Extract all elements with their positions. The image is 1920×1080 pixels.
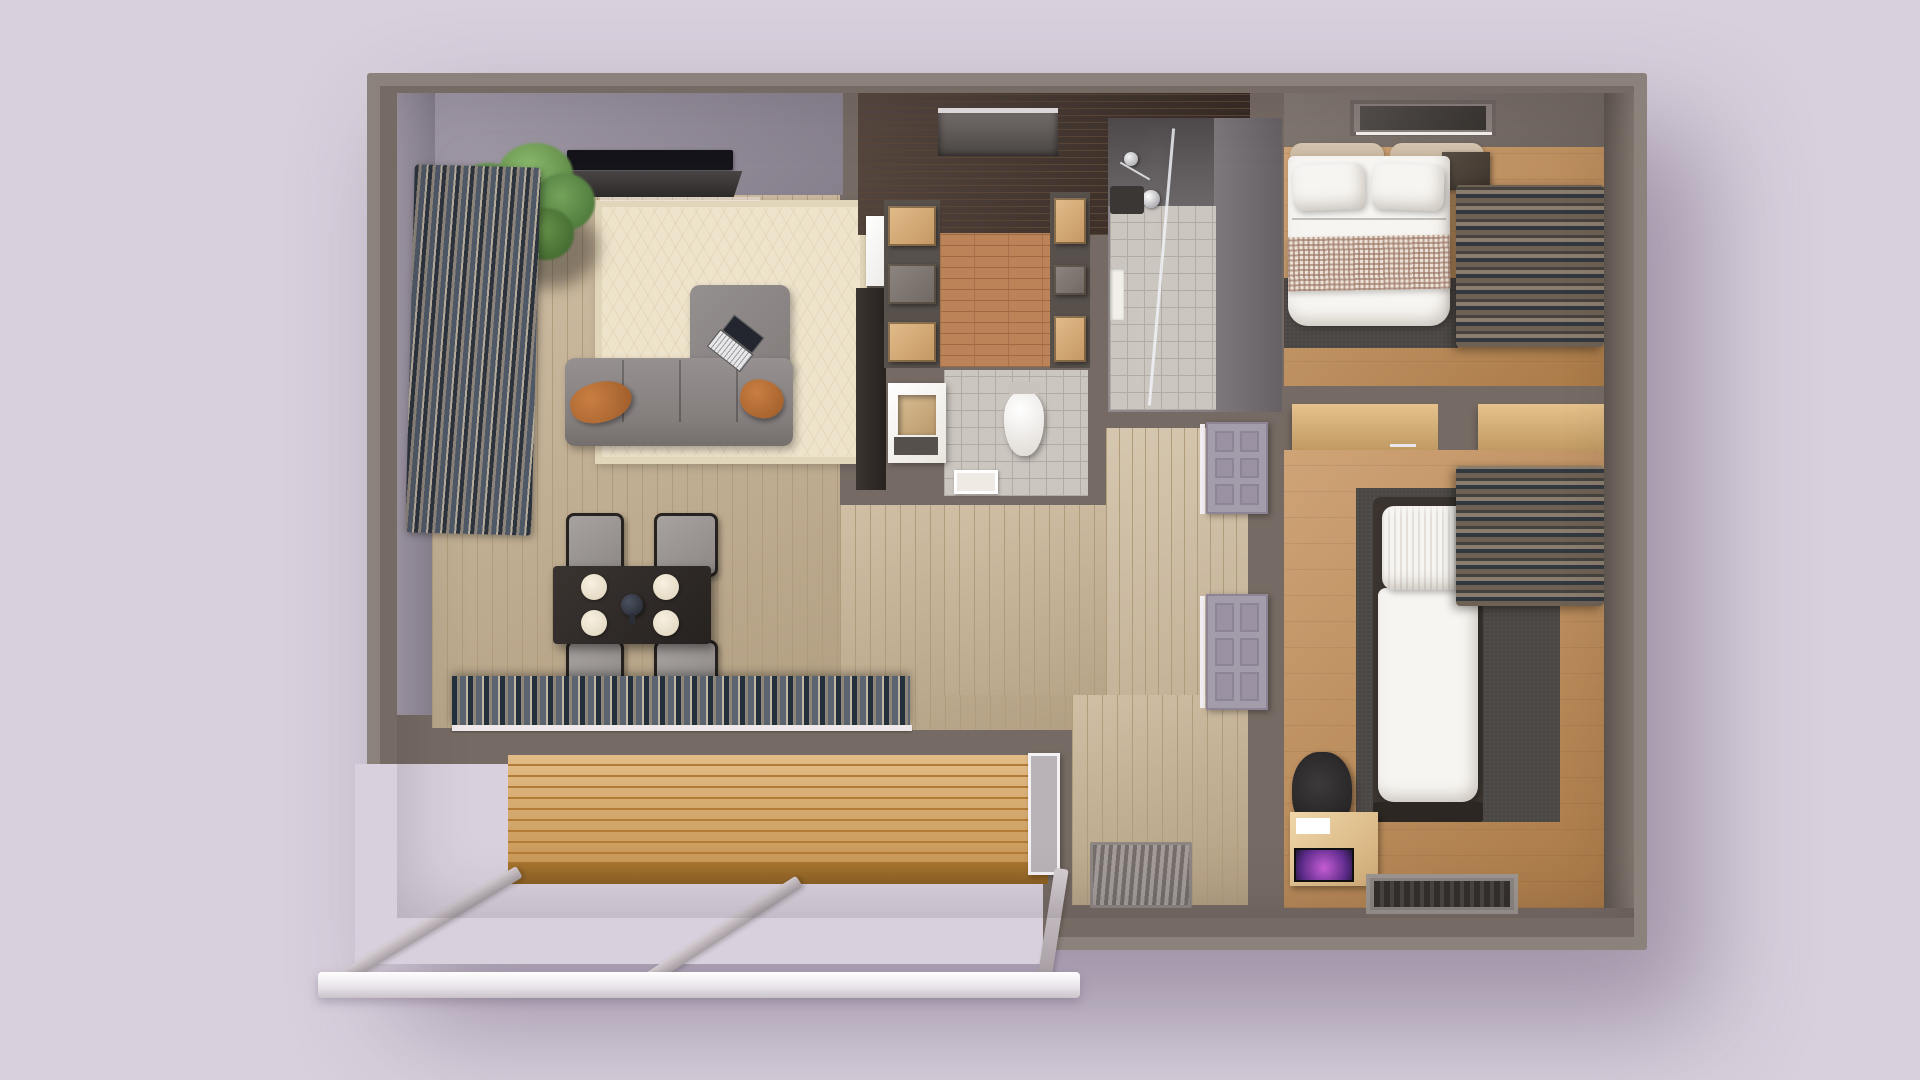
- vanity-basin: [898, 395, 936, 435]
- window-curtains-left: [405, 164, 541, 535]
- door-panel: [1240, 458, 1259, 479]
- right-wall-inner-face: [1604, 93, 1634, 908]
- cabinet-box: [1054, 316, 1086, 362]
- cabinet-box: [1054, 265, 1086, 295]
- bed2-footboard: [1373, 802, 1483, 822]
- kitchen-floor: [940, 233, 1050, 367]
- bedroom2-curtains: [1456, 466, 1604, 606]
- deck-edge-shadow: [508, 862, 1048, 884]
- plate: [581, 610, 607, 636]
- shower-right-wall: [1214, 118, 1282, 412]
- vent-inner: [1374, 881, 1510, 907]
- duvet-fold: [1292, 218, 1446, 220]
- divider-wall-stub: [1438, 386, 1478, 450]
- plate: [653, 574, 679, 600]
- door-edge-highlight: [1200, 424, 1205, 514]
- master-curtains: [1456, 185, 1604, 347]
- kitchen-cabinets-left: [884, 200, 940, 368]
- sofa-cushion-seam: [679, 360, 681, 422]
- door-panel: [1215, 638, 1234, 667]
- dining-table: [553, 566, 711, 644]
- toilet-bowl: [1004, 390, 1044, 456]
- toilet: [1004, 382, 1046, 458]
- shower-mat-dark: [1110, 186, 1144, 214]
- sliding-door-curtains: [452, 676, 910, 726]
- toilet-tank: [1008, 382, 1040, 394]
- hall-door-2: [1206, 594, 1268, 710]
- desk-drawer-handle: [1390, 444, 1416, 447]
- door-edge-highlight: [1200, 596, 1205, 708]
- wc-drain-mat: [954, 470, 998, 494]
- cabinet-box: [888, 322, 936, 362]
- door-panel: [1215, 603, 1234, 632]
- entry-grate: [1090, 842, 1192, 908]
- overhead-shelf-recess: [938, 108, 1058, 156]
- door-panel: [1215, 484, 1234, 505]
- bed-pillow: [1292, 163, 1366, 211]
- cabinet-box: [888, 264, 936, 304]
- desk-counter-right: [1478, 404, 1604, 450]
- hall-door-1: [1206, 422, 1268, 514]
- desk-counter-left: [1292, 404, 1438, 450]
- baseboard-highlight: [600, 197, 760, 201]
- teapot: [621, 594, 643, 616]
- deck-boards: [508, 755, 1048, 865]
- teapot-spout: [629, 614, 635, 624]
- vanity-shadow: [894, 437, 938, 455]
- shelf-rim-highlight: [938, 108, 1058, 113]
- recess-rim-light: [1356, 132, 1492, 135]
- sliding-door-sill: [452, 725, 912, 731]
- kitchen-counter: [856, 288, 886, 490]
- bed2-duvet: [1378, 588, 1478, 802]
- shower-head-large: [1142, 190, 1160, 208]
- door-panel: [1215, 431, 1234, 452]
- door-panel: [1215, 672, 1234, 701]
- door-panel: [1215, 458, 1234, 479]
- bed-pillow: [1371, 163, 1445, 211]
- plate: [581, 574, 607, 600]
- checkered-blanket: [1288, 235, 1451, 292]
- door-panel: [1240, 672, 1259, 701]
- ceiling-light-recess: [1350, 100, 1496, 136]
- master-bed: [1288, 156, 1450, 328]
- paper-sheet: [1296, 818, 1330, 834]
- cabinet-box: [888, 206, 936, 246]
- shower-niche: [1110, 268, 1124, 320]
- floor-plan-render: [0, 0, 1920, 1080]
- door-panel: [1240, 484, 1259, 505]
- monitor-screen: [1294, 848, 1354, 882]
- door-panel: [1240, 603, 1259, 632]
- door-panel: [1240, 431, 1259, 452]
- recess-inner: [1360, 106, 1486, 130]
- railing-bar: [318, 972, 1080, 998]
- cabinet-box: [1054, 198, 1086, 244]
- door-panel: [1240, 638, 1259, 667]
- kitchen-cabinets-right: [1050, 192, 1090, 368]
- vanity: [888, 383, 946, 463]
- monitor-desk: [1290, 812, 1378, 886]
- floor-vent: [1366, 874, 1518, 914]
- plate: [653, 610, 679, 636]
- deck-glass-door: [1028, 753, 1060, 875]
